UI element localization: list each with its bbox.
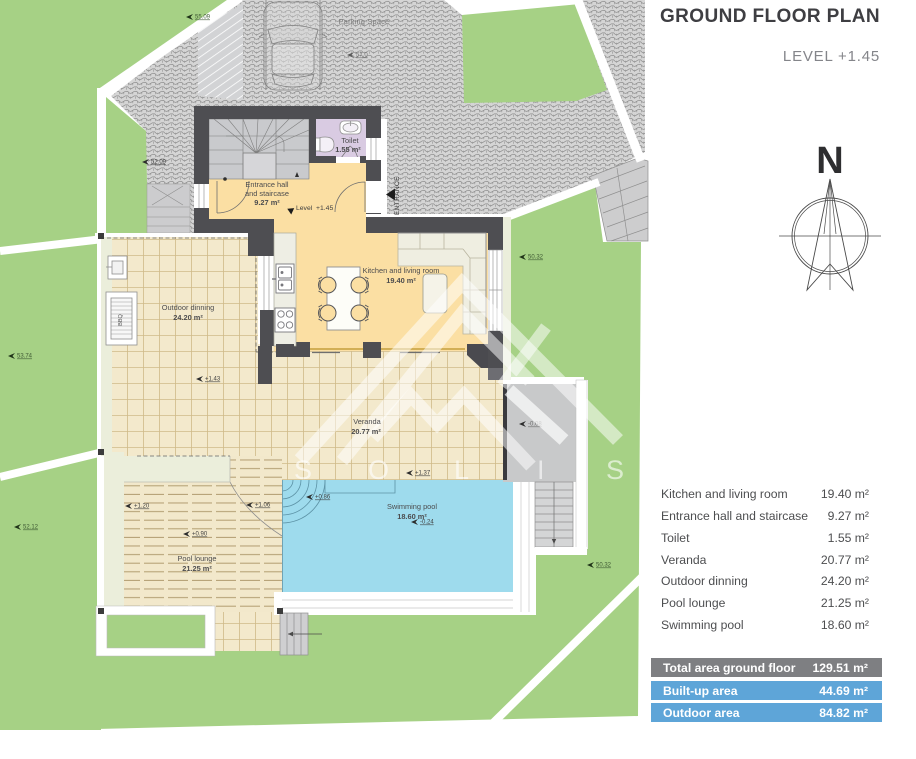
svg-text:+1.43: +1.43 <box>205 377 221 383</box>
svg-text:O: O <box>368 455 389 485</box>
svg-text:21.25 m²: 21.25 m² <box>182 564 212 573</box>
svg-text:+1.06: +1.06 <box>255 503 271 509</box>
svg-text:Veranda: Veranda <box>661 553 707 567</box>
svg-text:18.60 m²: 18.60 m² <box>821 618 869 632</box>
svg-text:L: L <box>454 455 469 485</box>
svg-text:1.55 m²: 1.55 m² <box>335 145 361 154</box>
svg-text:55.09: 55.09 <box>195 15 211 21</box>
svg-text:Toilet: Toilet <box>661 531 690 545</box>
svg-text:21.25 m²: 21.25 m² <box>821 596 869 610</box>
svg-text:50.32: 50.32 <box>528 255 544 261</box>
svg-text:19.40 m²: 19.40 m² <box>821 487 869 501</box>
svg-text:and staircase: and staircase <box>245 189 289 198</box>
svg-text:Entrance hall: Entrance hall <box>245 180 288 189</box>
svg-text:Outdoor dinning: Outdoor dinning <box>661 574 748 588</box>
svg-text:Outdoor dinning: Outdoor dinning <box>162 303 215 312</box>
svg-text:Pool lounge: Pool lounge <box>661 596 726 610</box>
svg-text:84.82 m²: 84.82 m² <box>819 706 868 720</box>
svg-text:Parking Space: Parking Space <box>339 17 390 26</box>
svg-text:+1.37: +1.37 <box>415 471 431 477</box>
svg-text:Entrance hall and staircase: Entrance hall and staircase <box>661 509 808 523</box>
svg-text:Kitchen and living room: Kitchen and living room <box>661 487 788 501</box>
svg-text:50.32: 50.32 <box>596 563 612 569</box>
svg-text:20.77 m²: 20.77 m² <box>821 553 869 567</box>
svg-text:LEVEL +1.45: LEVEL +1.45 <box>783 48 880 65</box>
svg-text:N: N <box>816 140 843 182</box>
svg-text:Total area ground floor: Total area ground floor <box>663 661 796 675</box>
svg-text:ENTRANCE: ENTRANCE <box>394 176 401 215</box>
svg-text:+0.90: +0.90 <box>192 532 208 538</box>
svg-text:129.51 m²: 129.51 m² <box>812 661 868 675</box>
svg-text:BBQ: BBQ <box>118 313 124 325</box>
svg-text:52.12: 52.12 <box>23 525 39 531</box>
svg-text:1.55 m²: 1.55 m² <box>828 531 869 545</box>
svg-text:24.20 m²: 24.20 m² <box>821 574 869 588</box>
svg-text:19.40 m²: 19.40 m² <box>386 276 416 285</box>
svg-text:Toilet: Toilet <box>341 136 358 145</box>
svg-text:9.27 m²: 9.27 m² <box>254 198 280 207</box>
svg-text:I: I <box>537 455 545 485</box>
svg-text:+1.20: +1.20 <box>134 504 150 510</box>
svg-text:Outdoor area: Outdoor area <box>663 706 740 720</box>
svg-text:+0.86: +0.86 <box>315 495 331 501</box>
svg-text:S: S <box>606 455 624 485</box>
svg-text:57.0: 57.0 <box>356 53 368 59</box>
svg-text:-0.24: -0.24 <box>420 520 434 526</box>
svg-text:Pool lounge: Pool lounge <box>177 554 216 563</box>
svg-text:9.27 m²: 9.27 m² <box>828 509 869 523</box>
svg-text:52.09: 52.09 <box>151 160 167 166</box>
svg-text:44.69 m²: 44.69 m² <box>819 684 868 698</box>
svg-text:Swimming pool: Swimming pool <box>387 502 437 511</box>
svg-text:S: S <box>294 455 312 485</box>
svg-text:20.77 m²: 20.77 m² <box>351 427 381 436</box>
svg-text:24.20 m²: 24.20 m² <box>173 313 203 322</box>
svg-text:Swimming pool: Swimming pool <box>661 618 744 632</box>
svg-text:Veranda: Veranda <box>353 417 381 426</box>
svg-text:GROUND FLOOR PLAN: GROUND FLOOR PLAN <box>660 6 880 27</box>
svg-text:Built-up area: Built-up area <box>663 684 738 698</box>
svg-text:Level +1.45: Level +1.45 <box>296 205 333 212</box>
svg-text:Kitchen and living room: Kitchen and living room <box>363 266 440 275</box>
svg-text:53.74: 53.74 <box>17 354 33 360</box>
